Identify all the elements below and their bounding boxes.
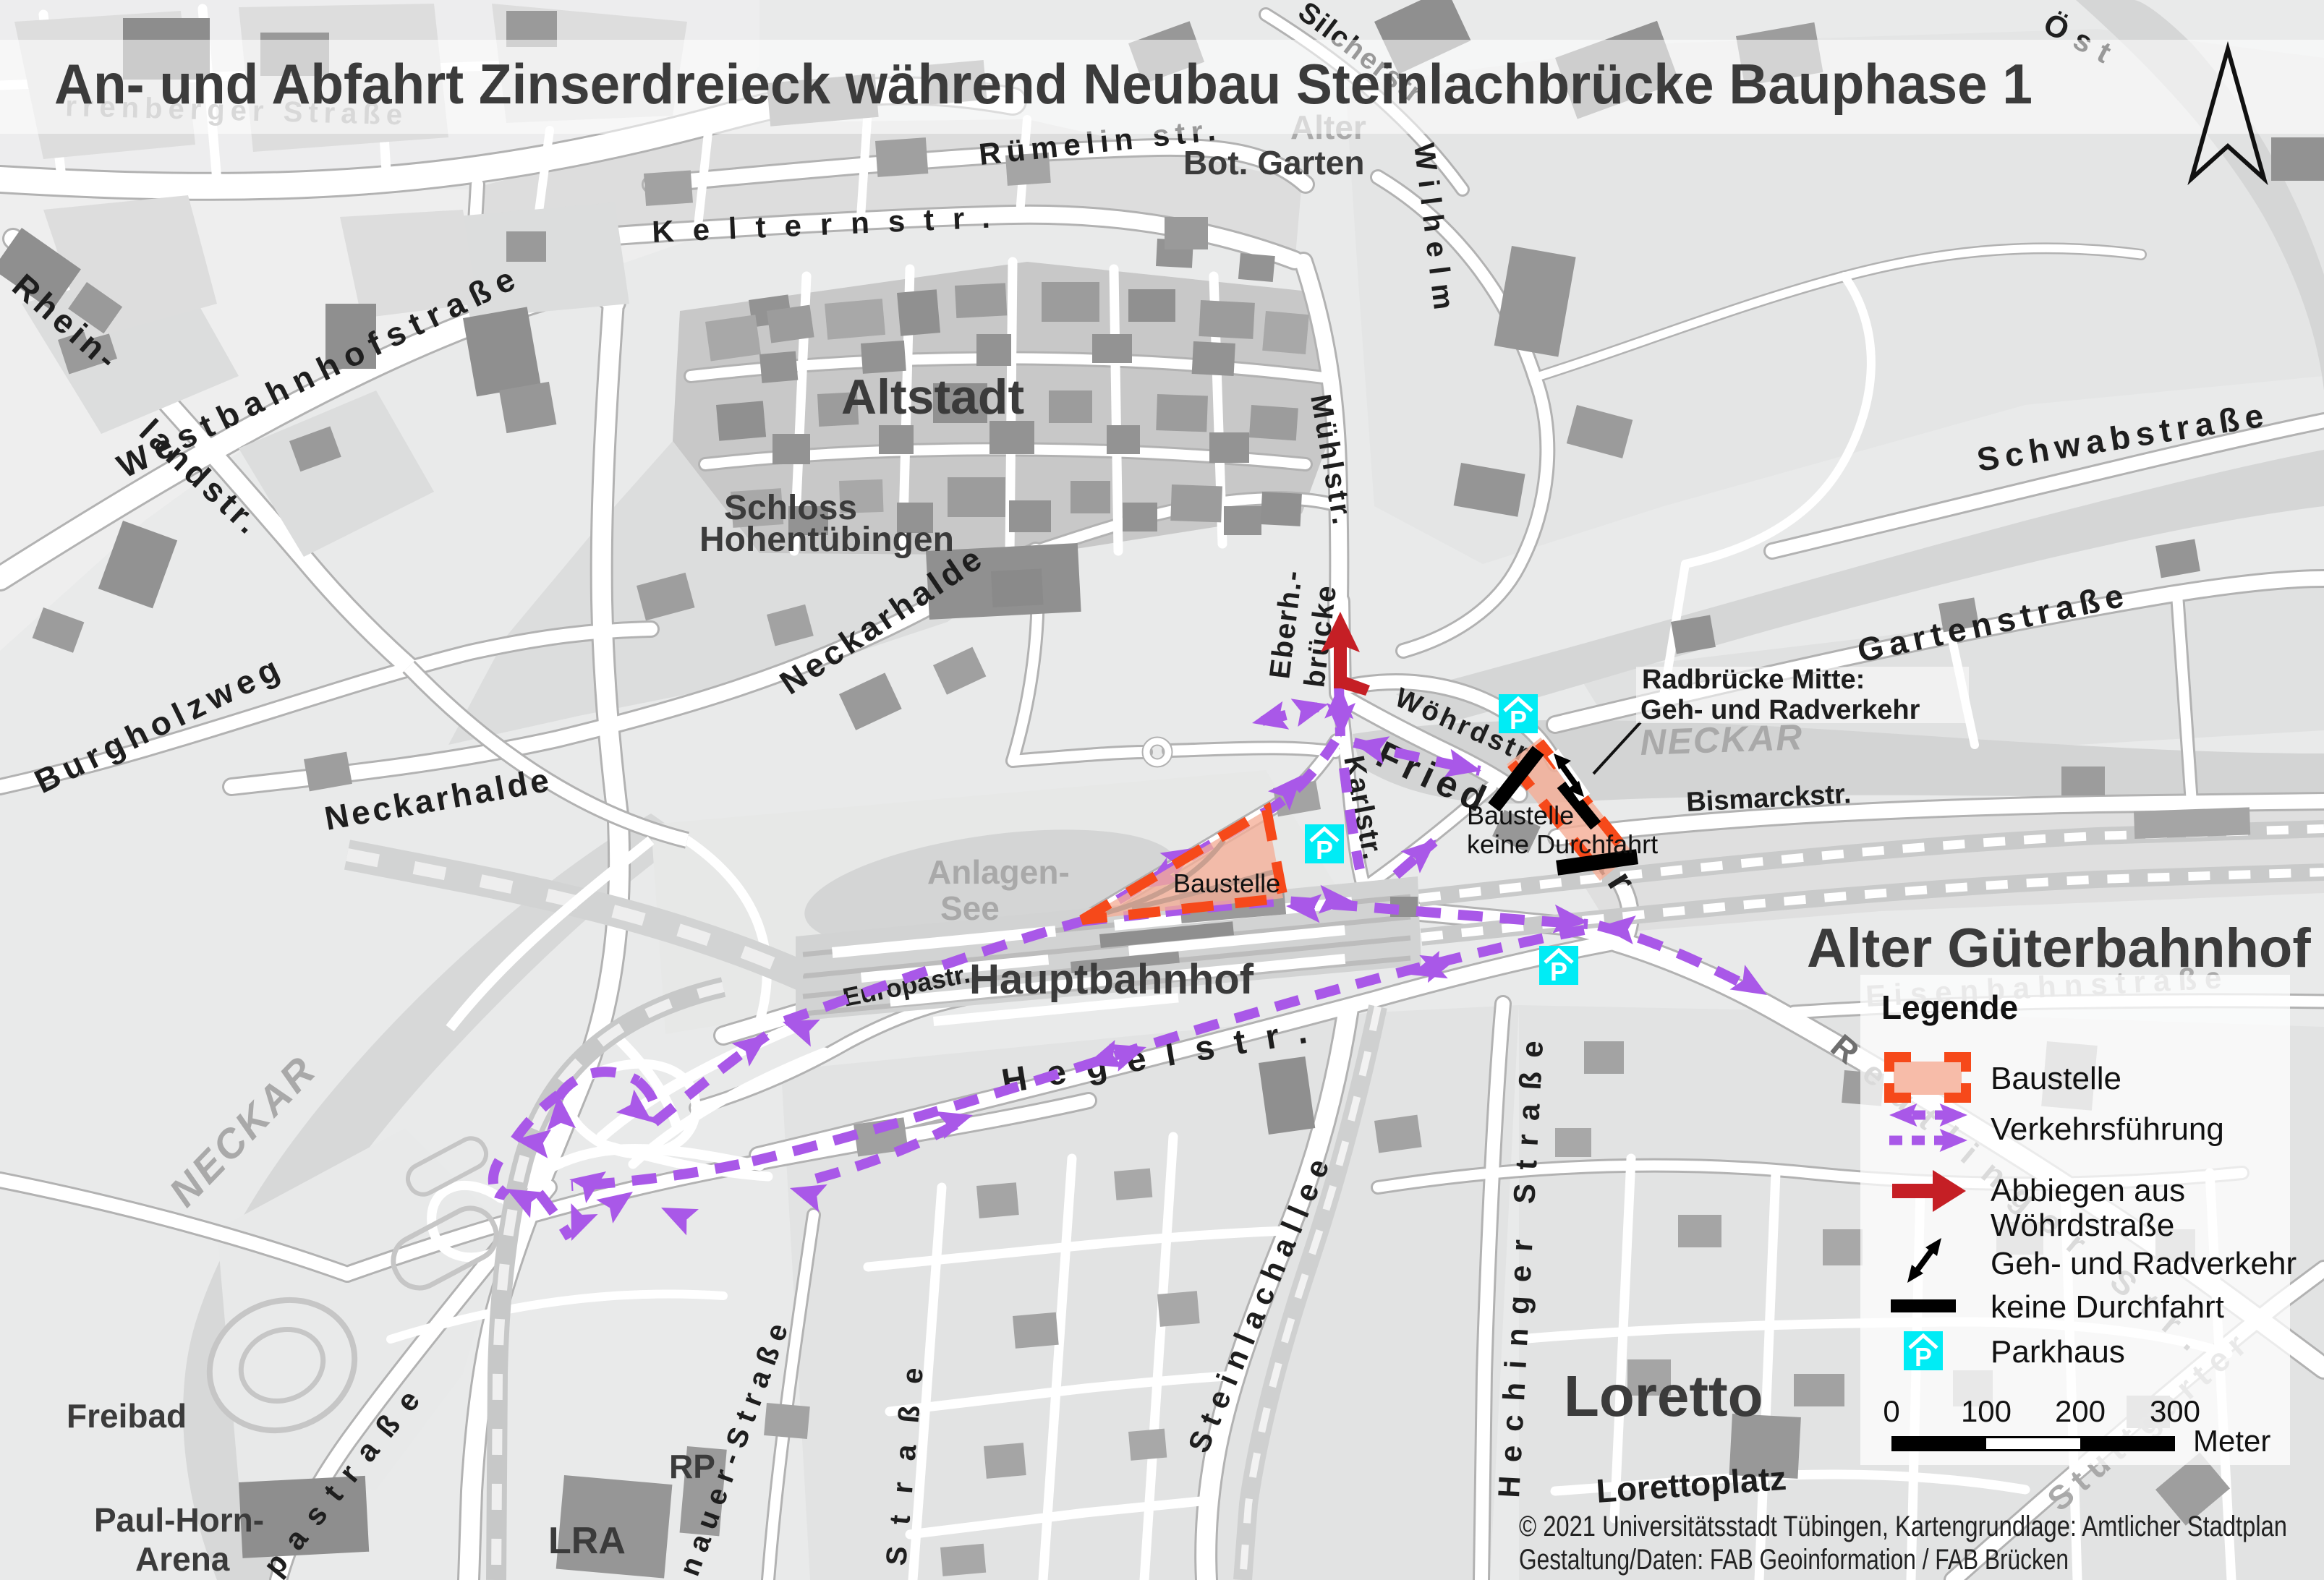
svg-text:Hauptbahnhof: Hauptbahnhof: [969, 956, 1254, 1003]
svg-text:P: P: [1550, 957, 1567, 986]
svg-text:Radbrücke Mitte:: Radbrücke Mitte:: [1642, 665, 1865, 695]
svg-text:Parkhaus: Parkhaus: [1991, 1334, 2125, 1370]
svg-text:Altstadt: Altstadt: [841, 370, 1024, 424]
svg-text:Gestaltung/Daten: FAB Geoinfor: Gestaltung/Daten: FAB Geoinformation / F…: [1519, 1544, 2069, 1576]
svg-text:LRA: LRA: [548, 1520, 626, 1562]
svg-text:Paul-Horn-: Paul-Horn-: [94, 1501, 264, 1539]
svg-text:Alter Güterbahnhof: Alter Güterbahnhof: [1807, 918, 2311, 979]
svg-text:An- und Abfahrt Zinserdreieck: An- und Abfahrt Zinserdreieck während Ne…: [54, 52, 2033, 116]
svg-text:Geh- und Radverkehr: Geh- und Radverkehr: [1991, 1246, 2297, 1281]
svg-text:100: 100: [1961, 1394, 2012, 1428]
svg-text:Baustelle: Baustelle: [1991, 1061, 2121, 1096]
svg-text:Baustelle: Baustelle: [1467, 800, 1574, 830]
svg-text:Verkehrsführung: Verkehrsführung: [1991, 1111, 2224, 1147]
svg-text:Loretto: Loretto: [1564, 1364, 1763, 1428]
svg-text:P: P: [1510, 705, 1527, 735]
svg-text:0: 0: [1883, 1394, 1899, 1428]
svg-text:P: P: [1316, 835, 1333, 865]
svg-text:keine Durchfahrt: keine Durchfahrt: [1467, 829, 1658, 859]
svg-text:Baustelle: Baustelle: [1173, 868, 1280, 898]
svg-text:300: 300: [2150, 1394, 2200, 1428]
svg-text:Arena: Arena: [135, 1540, 230, 1578]
svg-text:Freibad: Freibad: [67, 1397, 187, 1435]
svg-text:keine Durchfahrt: keine Durchfahrt: [1991, 1289, 2224, 1325]
svg-text:RP: RP: [669, 1448, 715, 1485]
svg-text:200: 200: [2055, 1394, 2106, 1428]
svg-text:Hohentübingen: Hohentübingen: [699, 521, 954, 559]
svg-text:See: See: [940, 889, 1000, 927]
svg-text:Anlagen-: Anlagen-: [927, 853, 1070, 891]
svg-text:Legende: Legende: [1881, 988, 2018, 1026]
svg-text:Bot. Garten: Bot. Garten: [1183, 144, 1364, 182]
svg-text:Abbiegen aus: Abbiegen aus: [1991, 1173, 2185, 1208]
svg-text:Geh- und Radverkehr: Geh- und Radverkehr: [1640, 695, 1920, 725]
svg-text:Wöhrdstraße: Wöhrdstraße: [1991, 1208, 2174, 1243]
svg-text:Meter: Meter: [2193, 1424, 2270, 1458]
svg-text:© 2021 Universitätsstadt Tübin: © 2021 Universitätsstadt Tübingen, Karte…: [1519, 1511, 2287, 1542]
svg-text:P: P: [1915, 1342, 1932, 1372]
